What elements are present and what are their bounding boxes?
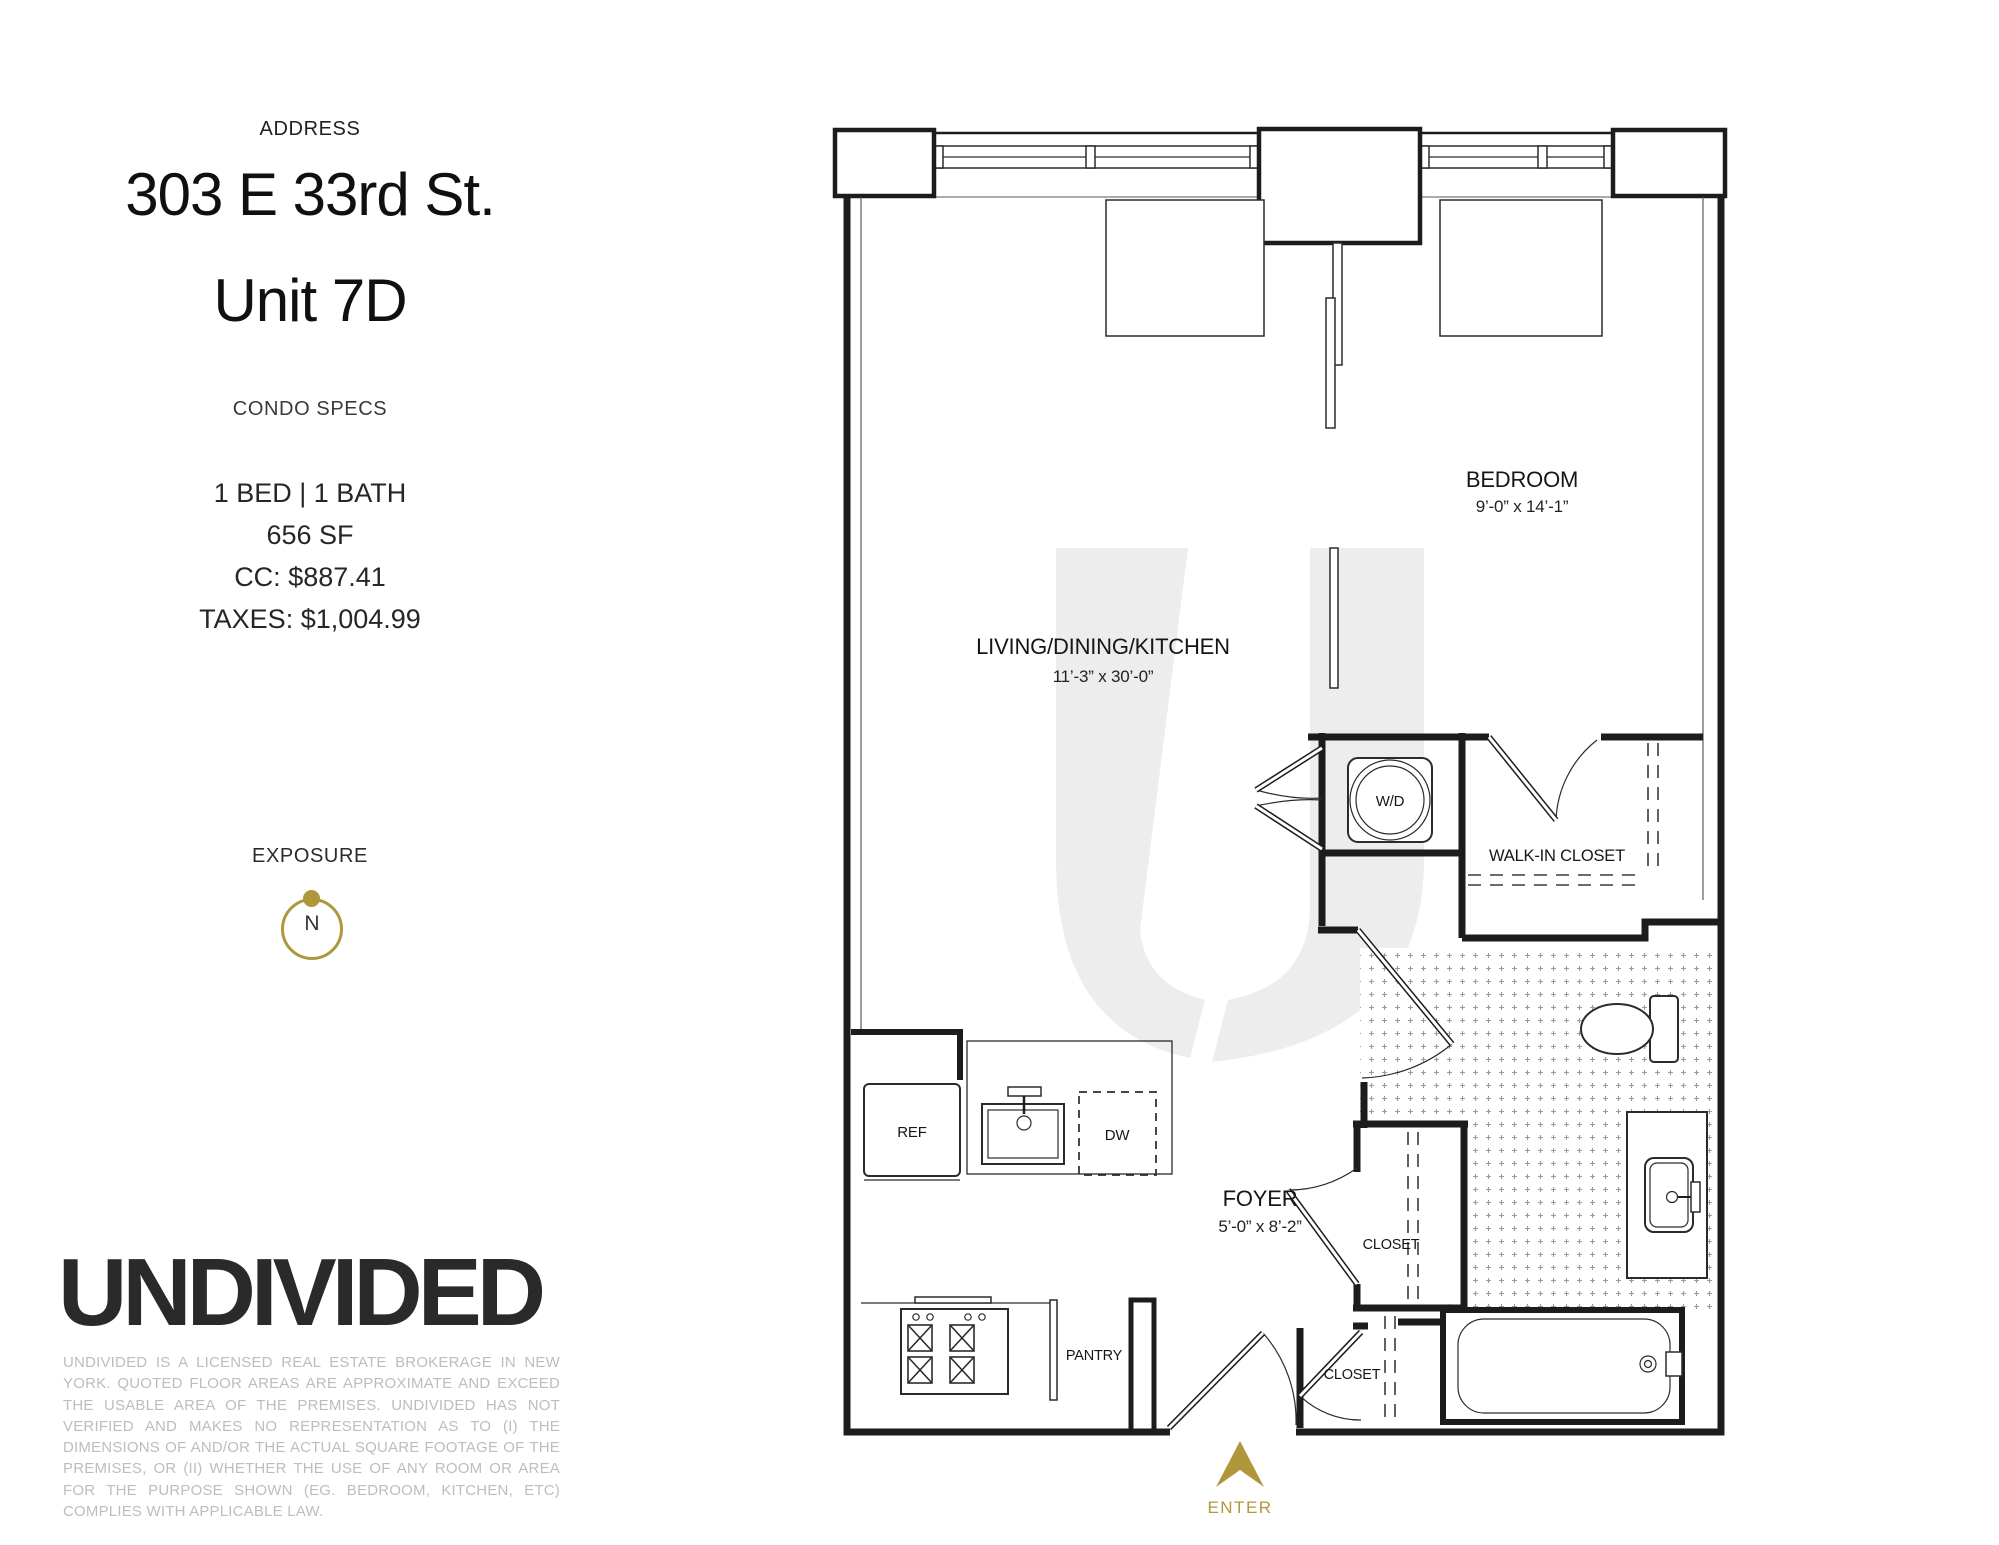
entry-closet-label: CLOSET (1324, 1367, 1381, 1383)
enter-label: ENTER (1207, 1498, 1272, 1517)
dishwasher: DW (1079, 1092, 1156, 1175)
pantry-wall (1131, 1300, 1154, 1432)
living-label: LIVING/DINING/KITCHEN (976, 634, 1230, 659)
foyer-label: FOYER (1223, 1186, 1298, 1211)
kitchen-stove-run: PANTRY (861, 1297, 1154, 1432)
enter-marker: ENTER (1207, 1441, 1272, 1517)
washer-dryer-label: W/D (1376, 793, 1405, 810)
window-bench-left (1106, 200, 1264, 336)
floor-plan-drawing: W/D (0, 0, 1999, 1545)
washer-dryer: W/D (1348, 758, 1432, 842)
stove (901, 1309, 1008, 1394)
bedroom-dims: 9’-0” x 14’-1” (1476, 497, 1569, 516)
pantry-partition (1050, 1300, 1057, 1400)
dishwasher-label: DW (1105, 1127, 1131, 1144)
entry-closet: CLOSET (1300, 1316, 1443, 1428)
enter-arrow-icon (1216, 1441, 1264, 1487)
bathtub (1443, 1310, 1682, 1422)
bedroom-label: BEDROOM (1466, 467, 1578, 492)
vanity-sink (1627, 1112, 1707, 1278)
kitchen-sink (982, 1087, 1064, 1164)
entry-door[interactable] (1169, 1333, 1296, 1428)
kitchen: REF DW (851, 1032, 1172, 1180)
foyer-closet-label: CLOSET (1363, 1237, 1420, 1253)
pantry-label: PANTRY (1066, 1348, 1123, 1364)
walk-in-closet-label: WALK-IN CLOSET (1489, 847, 1625, 865)
floor-plan-page: ADDRESS 303 E 33rd St. Unit 7D CONDO SPE… (0, 0, 1999, 1545)
window-bench-right (1440, 200, 1602, 336)
foyer-closet: CLOSET (1288, 1124, 1468, 1312)
living-dims: 11’-3” x 30’-0” (1053, 667, 1154, 686)
walk-in-closet-door[interactable] (1489, 737, 1597, 820)
foyer-dims: 5’-0” x 8’-2” (1218, 1217, 1302, 1236)
refrigerator-label: REF (897, 1124, 926, 1141)
